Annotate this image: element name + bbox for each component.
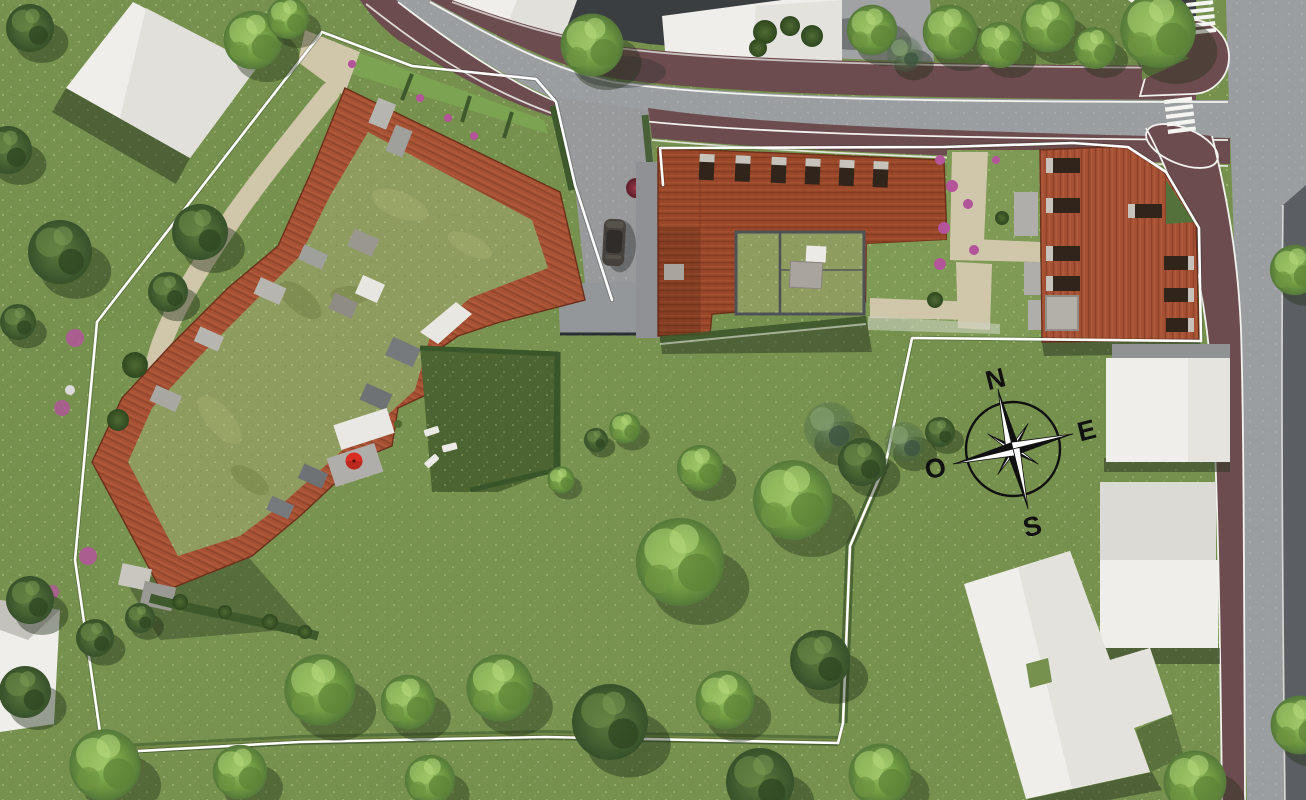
bush — [172, 594, 188, 610]
courtyard-skylight-grey — [789, 261, 822, 289]
bush — [107, 409, 129, 431]
nb-r1-shade — [1188, 358, 1230, 462]
parasol-pole — [352, 459, 355, 462]
courtyard-lawn-texture — [420, 346, 560, 492]
bush — [218, 605, 232, 619]
courtyard-skylight-white — [806, 245, 827, 262]
nb-r2-top — [1100, 482, 1216, 560]
bush — [122, 352, 148, 378]
west-wing-skylight — [664, 264, 684, 280]
bush — [995, 211, 1009, 225]
bush — [927, 292, 943, 308]
building-c-skylight — [1046, 296, 1078, 330]
site-plan: N E S O — [0, 0, 1306, 800]
bush — [262, 614, 278, 630]
nb-r1-roofband — [1112, 344, 1230, 360]
nb-r2 — [1100, 560, 1218, 648]
car-trunk — [605, 255, 621, 260]
potted-plant — [394, 420, 402, 428]
car-roof — [605, 230, 622, 254]
bush — [298, 625, 312, 639]
car-hood — [606, 221, 624, 229]
site-plan-canvas: N E S O — [0, 0, 1306, 800]
building-b-west-wing-shade — [658, 228, 700, 336]
building-b-west-walkway — [636, 162, 660, 338]
